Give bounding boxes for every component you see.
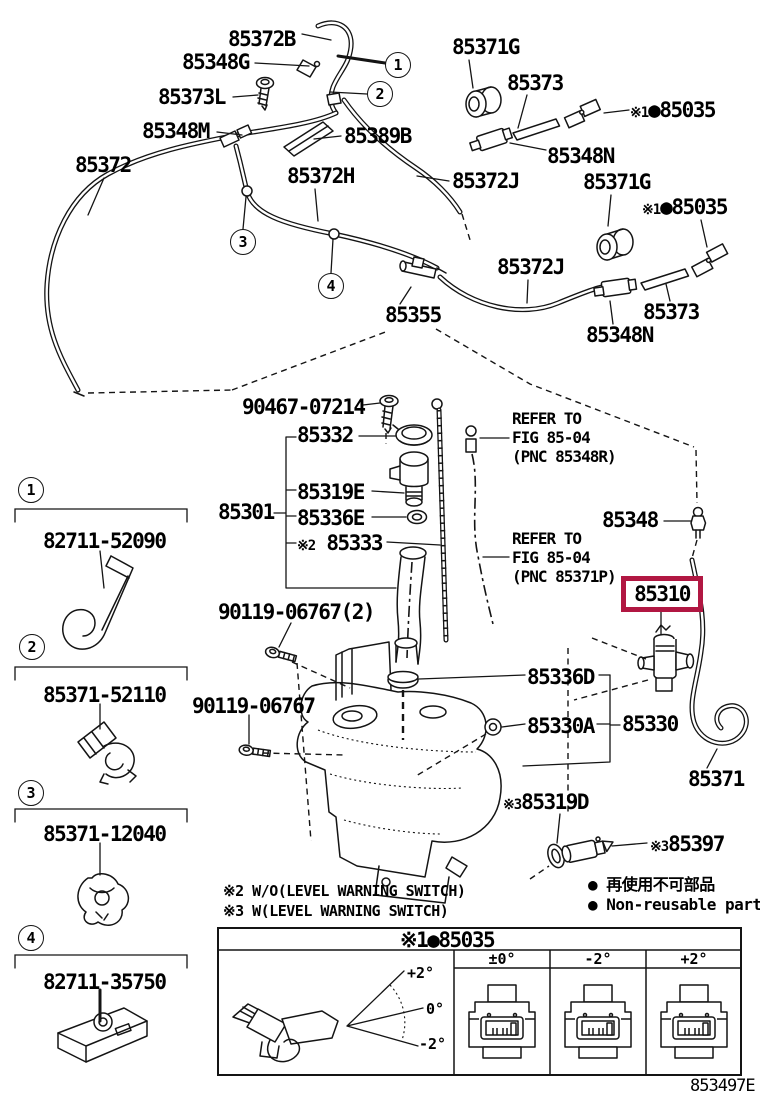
- angle-label-0: 0°: [426, 1002, 444, 1017]
- nozzle-angle-drawing: [233, 971, 423, 1062]
- refer-note-a-line3: (PNC 85348R): [512, 449, 616, 465]
- clip-85371-12040: [78, 874, 128, 925]
- group-circle-3: 3: [18, 780, 44, 806]
- group-circle-4: 4: [18, 925, 44, 951]
- part-label-85372H: 85372H: [287, 166, 354, 187]
- part-label-85332: 85332: [297, 425, 353, 446]
- callout-circle-3: 3: [230, 229, 256, 255]
- refer-note-b-line2: FIG 85-04: [512, 550, 590, 566]
- group-part-82711-52090: 82711-52090: [43, 531, 166, 552]
- part-label-85373-2: 85373: [643, 302, 699, 323]
- part-label-85348N-2: 85348N: [586, 325, 653, 346]
- part-label-85333: ※2 85333: [297, 533, 382, 554]
- ref-mark-3: ※3: [503, 797, 521, 813]
- toyota-parts-diagram: 85372B 85348G 85373L 85348M 85389B 85372…: [0, 0, 760, 1112]
- part-label-85319E: 85319E: [297, 482, 364, 503]
- table-col-plus2deg: +2°: [674, 952, 714, 967]
- note-level-warning-wo: ※2 W/O(LEVEL WARNING SWITCH): [223, 884, 465, 899]
- part-label-85389B: 85389B: [344, 126, 411, 147]
- group-part-85371-12040: 85371-12040: [43, 824, 166, 845]
- part-label-85371G-1: 85371G: [452, 37, 519, 58]
- note-level-warning-w: ※3 W(LEVEL WARNING SWITCH): [223, 904, 448, 919]
- callout-circle-4: 4: [318, 273, 344, 299]
- refer-note-a-line2: FIG 85-04: [512, 430, 590, 446]
- group-circle-1: 1: [18, 477, 44, 503]
- part-label-85371G-2: 85371G: [583, 172, 650, 193]
- part-label-85035-2: ※1●85035: [642, 197, 727, 218]
- part-label-85373L: 85373L: [158, 87, 225, 108]
- ref-mark-1: ※1: [400, 928, 427, 952]
- bracket-82711-35750: [58, 1008, 147, 1062]
- part-label-85336D: 85336D: [527, 667, 594, 688]
- clamp-85371-52110: [78, 722, 136, 784]
- group-circle-2: 2: [19, 634, 45, 660]
- callout-circle-2: 2: [367, 81, 393, 107]
- part-label-90119-06767-2: 90119-06767(2): [218, 602, 374, 623]
- part-label-85372: 85372: [75, 155, 131, 176]
- angle-label-minus2: -2°: [419, 1037, 446, 1052]
- callout-circle-1: 1: [385, 52, 411, 78]
- bullet-icon: ●: [588, 875, 597, 894]
- bullet-icon: ●: [588, 895, 597, 914]
- part-label-85372B: 85372B: [228, 29, 295, 50]
- ref-mark-1: ※1: [630, 105, 648, 121]
- part-label-85397: ※385397: [650, 834, 724, 855]
- highlighted-part-85310: 85310: [621, 576, 703, 612]
- ref-mark-1: ※1: [642, 202, 660, 218]
- ref-mark-3: ※3: [650, 839, 668, 855]
- note-reuse-en: ● Non-reusable part: [588, 897, 760, 913]
- note-reuse-jp: ● 再使用不可部品: [588, 877, 715, 893]
- refer-note-b-line3: (PNC 85371P): [512, 569, 616, 585]
- part-label-85371: 85371: [688, 769, 744, 790]
- figure-code: 853497E: [690, 1078, 755, 1095]
- part-label-85372J-2: 85372J: [497, 257, 564, 278]
- table-col-minus2deg: -2°: [578, 952, 618, 967]
- fittings-top-left: [220, 60, 341, 156]
- part-label-85348M: 85348M: [142, 121, 209, 142]
- ref-mark-2: ※2: [297, 538, 315, 554]
- part-label-85348: 85348: [602, 510, 658, 531]
- table-col-0deg: ±0°: [482, 952, 522, 967]
- part-label-85372J-1: 85372J: [452, 171, 519, 192]
- part-label-85035-1: ※1●85035: [630, 100, 715, 121]
- table-header-85035: ※1●85035: [400, 930, 494, 951]
- part-label-85373-1: 85373: [507, 73, 563, 94]
- part-label-85330: 85330: [622, 714, 678, 735]
- group-part-82711-35750: 82711-35750: [43, 972, 166, 993]
- part-label-85301: 85301: [218, 502, 274, 523]
- group-part-85371-52110: 85371-52110: [43, 685, 166, 706]
- refer-note-b-line1: REFER TO: [512, 531, 581, 547]
- part-label-85319D: ※385319D: [503, 792, 588, 813]
- part-label-85330A: 85330A: [527, 716, 594, 737]
- part-label-85336E: 85336E: [297, 508, 364, 529]
- part-label-85355: 85355: [385, 305, 441, 326]
- part-label-90119-06767: 90119-06767: [192, 696, 315, 717]
- part-label-85348G: 85348G: [182, 52, 249, 73]
- angle-label-plus2: +2°: [407, 966, 434, 981]
- part-label-85348N-1: 85348N: [547, 146, 614, 167]
- refer-note-a-line1: REFER TO: [512, 411, 581, 427]
- part-label-90467-07214: 90467-07214: [242, 397, 365, 418]
